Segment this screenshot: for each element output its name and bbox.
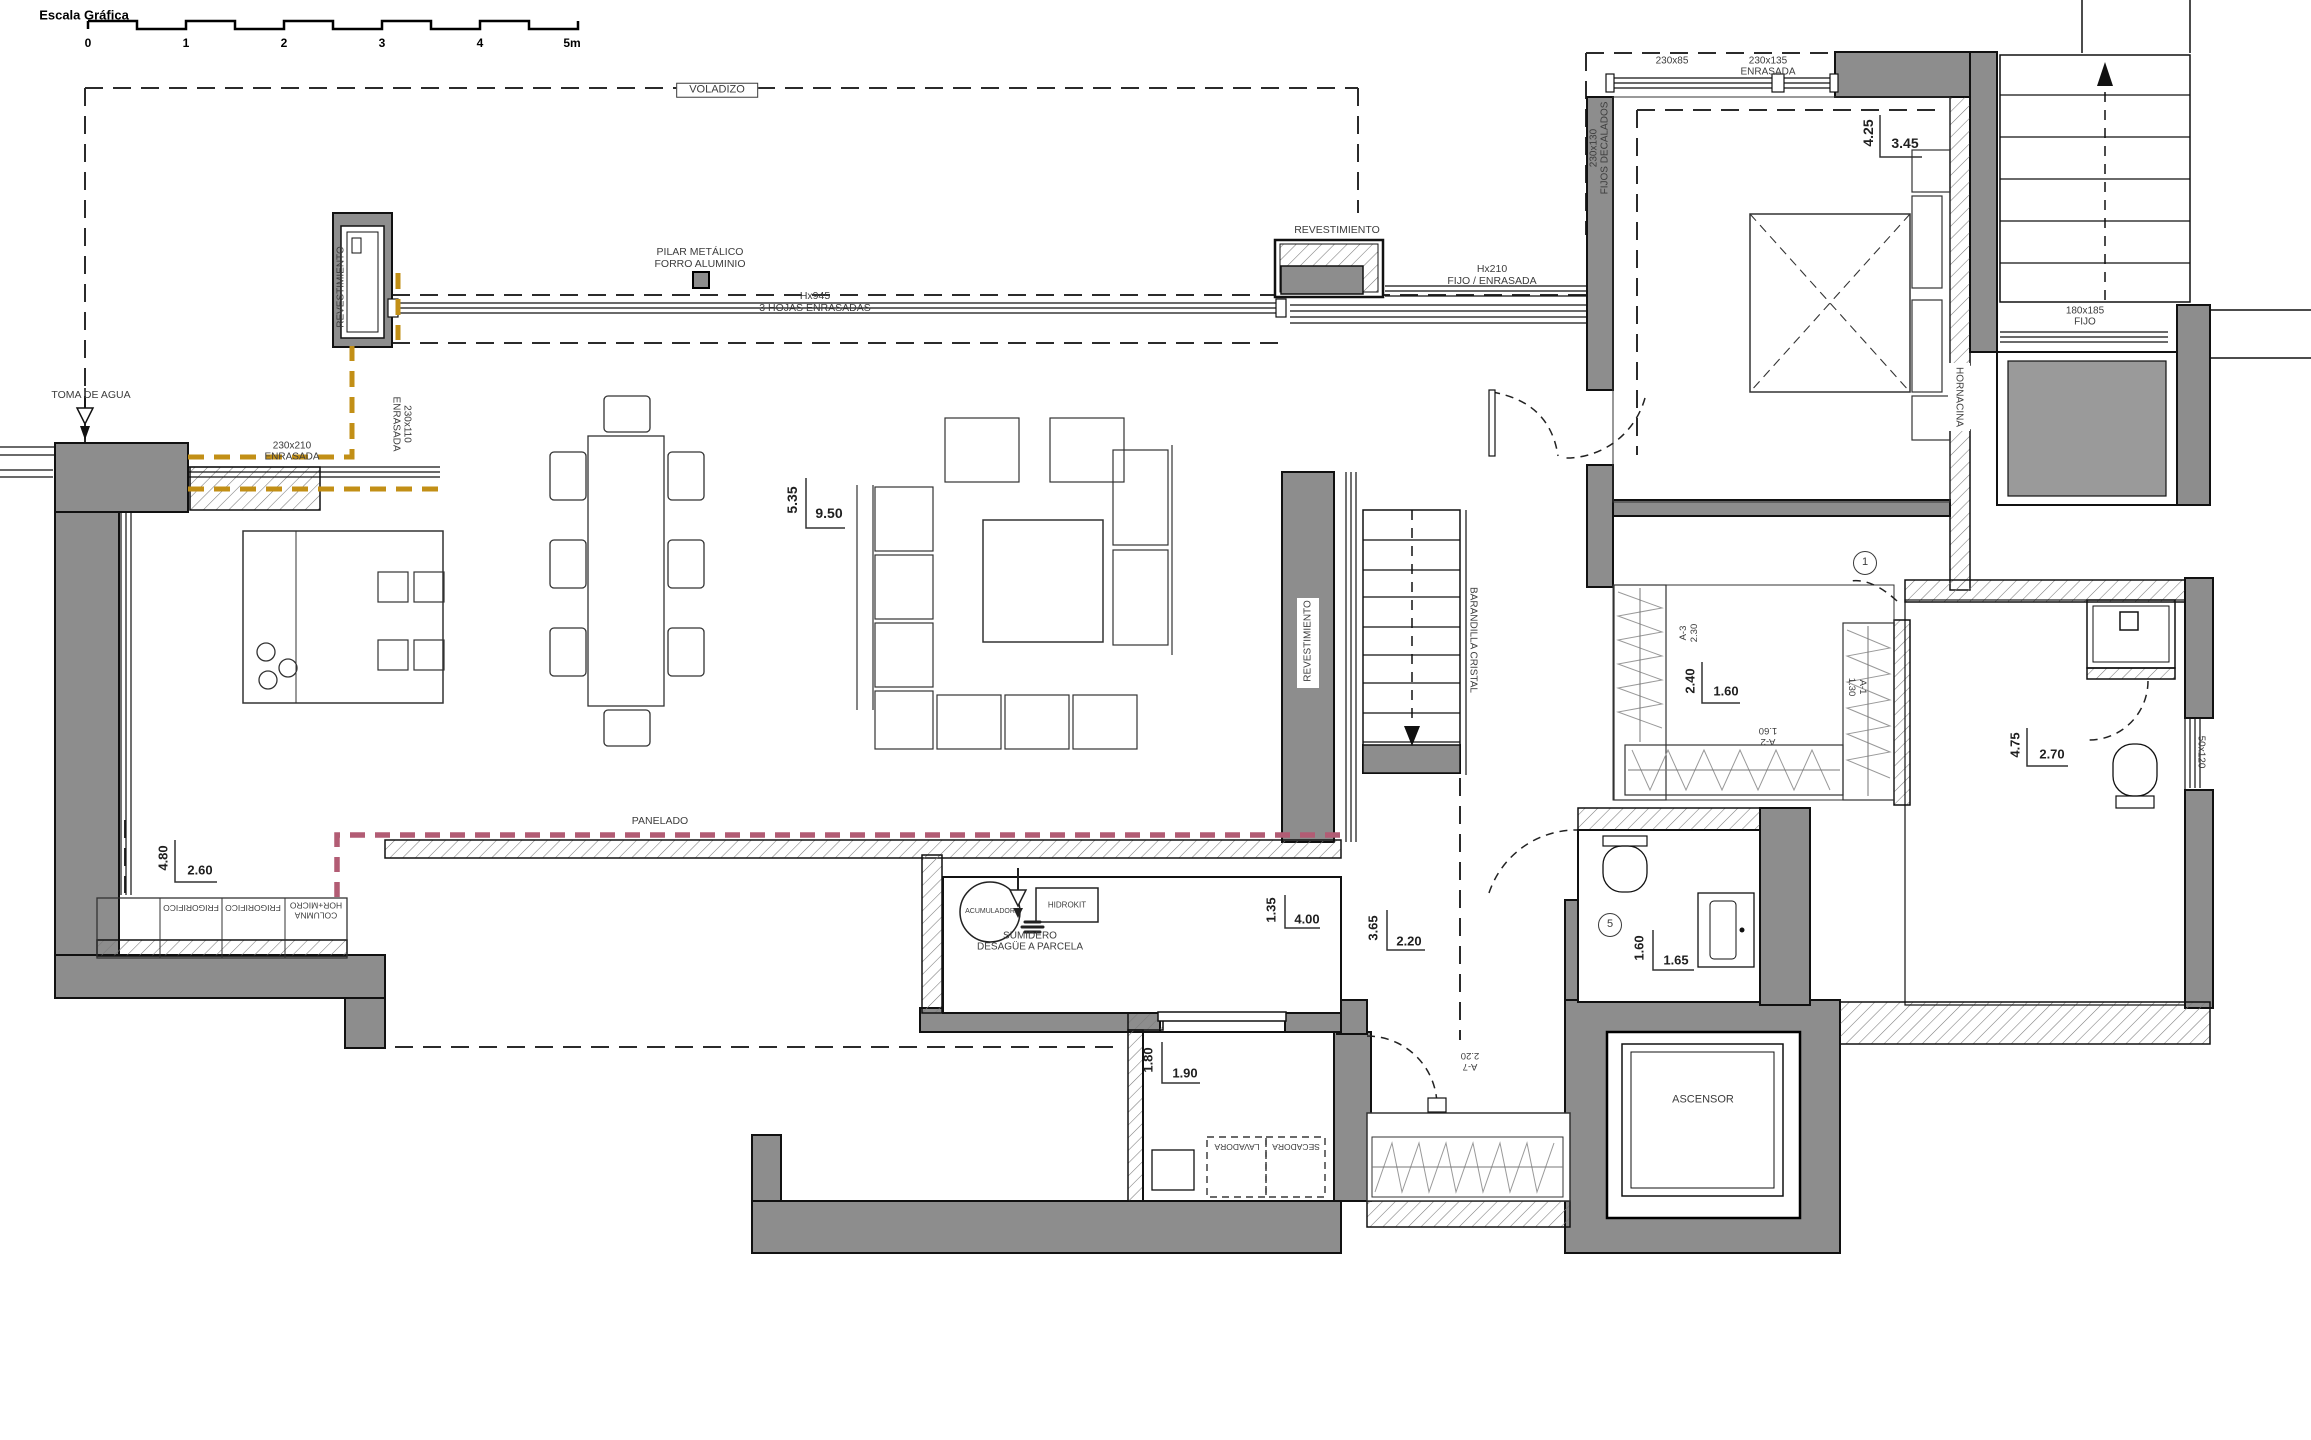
dim-1-35: 1.35 [1265, 897, 1280, 922]
dim-1-60-closet: 1.60 [1713, 685, 1738, 700]
dim-4-80: 4.80 [157, 845, 172, 870]
window-230x85-label: 230x85 [1656, 55, 1689, 66]
floor-plan-page: Escala Gráfica012345mVOLADIZOPILAR METÁL… [0, 0, 2311, 1440]
dim-1-90: 1.90 [1172, 1067, 1197, 1082]
window-230x135-label: 230x135 ENRASADA [1740, 56, 1795, 79]
closet-a3-label: A-3 2.30 [1679, 624, 1701, 643]
dim-2-70: 2.70 [2039, 748, 2064, 763]
dim-1-60-aseo: 1.60 [1633, 935, 1648, 960]
scale-tick-2: 2 [281, 37, 288, 51]
scale-tick-4: 4 [477, 37, 484, 51]
scale-tick-5m: 5m [563, 37, 580, 51]
revestimiento-pillar-label: REVESTIMIENTO [335, 246, 346, 328]
scale-tick-1: 1 [183, 37, 190, 51]
dim-3-65: 3.65 [1367, 915, 1382, 940]
dim-1-65: 1.65 [1663, 954, 1688, 969]
dim-4-00: 4.00 [1294, 913, 1319, 928]
circle-ref-5: 5 [1598, 913, 1622, 937]
barandilla-cristal-label: BARANDILLA CRISTAL [1467, 587, 1478, 693]
voladizo-label: VOLADIZO [676, 83, 758, 98]
panelado-label: PANELADO [632, 816, 688, 828]
scale-tick-3: 3 [379, 37, 386, 51]
pilar-metalico-label: PILAR METÁLICO FORRO ALUMINIO [654, 247, 745, 271]
dim-3-45: 3.45 [1891, 136, 1918, 152]
hornacina-label: HORNACINA [1953, 367, 1964, 427]
circle-ref-1: 1 [1853, 551, 1877, 575]
columna-hor-micro-label: COLUMNA HOR+MICRO [290, 900, 342, 919]
dim-2-40: 2.40 [1684, 668, 1699, 693]
closet-a2-label: A-2 1.60 [1759, 724, 1778, 746]
fijos-decalados-label: 230x130 FIJOS DECALADOS [1589, 102, 1612, 195]
dim-2-20: 2.20 [1396, 935, 1421, 950]
dim-2-60: 2.60 [187, 864, 212, 879]
window-50x120-label: 50x120 [2195, 736, 2206, 769]
window-180x185-label: 180x185 FIJO [2066, 306, 2104, 329]
dim-4-25: 4.25 [1861, 119, 1877, 146]
secadora-label: SECADORA [1272, 1141, 1320, 1151]
dim-1-80: 1.80 [1142, 1047, 1157, 1072]
dim-9-50: 9.50 [815, 506, 842, 522]
revestimiento-right-label: REVESTIMIENTO [1302, 600, 1313, 682]
window-230x110-label: 230x110 ENRASADA [390, 396, 413, 451]
hidrokit-label: HIDROKIT [1048, 900, 1086, 909]
acumulador-label: ACUMULADOR [965, 908, 1015, 916]
fijo-enrasada-hx210-label: Hx210 FIJO / ENRASADA [1447, 264, 1536, 288]
closet-a1-label: A-1 1.30 [1845, 678, 1867, 697]
revestimiento-top-label: REVESTIMIENTO [1294, 225, 1380, 237]
dim-4-75: 4.75 [2009, 732, 2024, 757]
frigorifico-2-label: FRIGORIFICO [163, 902, 219, 912]
dim-5-35: 5.35 [785, 486, 801, 513]
frigorifico-1-label: FRIGORIFICO [225, 902, 281, 912]
annotation-layer: Escala Gráfica012345mVOLADIZOPILAR METÁL… [0, 0, 2311, 1440]
closet-a7-label: A-7 2.20 [1461, 1049, 1480, 1071]
scale-bar-title: Escala Gráfica [39, 9, 129, 24]
scale-tick-0: 0 [85, 37, 92, 51]
sumidero-label: SUMIDERO DESAGÜE A PARCELA [977, 931, 1083, 954]
hojas-enrasadas-label: Hx945 3 HOJAS ENRASADAS [759, 291, 870, 315]
lavadora-label: LAVADORA [1214, 1141, 1259, 1151]
window-230x210-label: 230x210 ENRASADA [264, 441, 319, 464]
ascensor-label: ASCENSOR [1672, 1094, 1734, 1107]
toma-de-agua-label: TOMA DE AGUA [51, 390, 130, 402]
